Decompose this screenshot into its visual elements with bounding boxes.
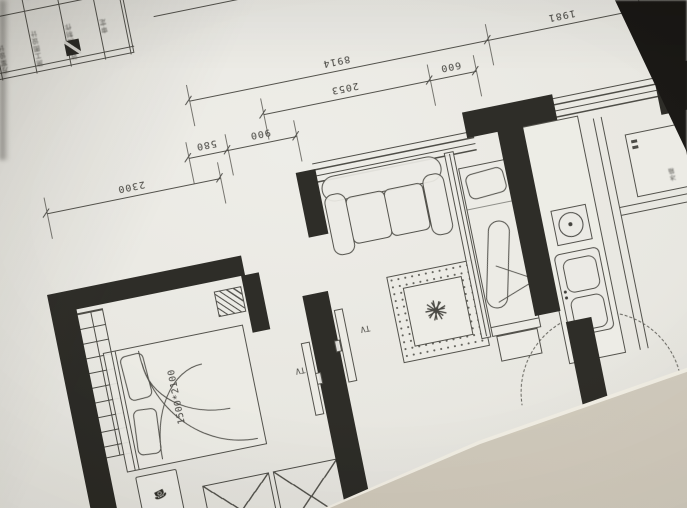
extension-line — [485, 24, 494, 65]
sheet-border-line — [154, 0, 262, 17]
bed-size-label-wrap: 1500*2100 — [136, 355, 219, 438]
extension-line — [44, 198, 53, 239]
dimension-line — [263, 71, 476, 115]
wall-entry-stub — [241, 272, 270, 332]
extension-line — [217, 162, 226, 203]
dim-2053: 2053 — [318, 77, 371, 98]
wardrobe-x-1 — [202, 472, 281, 508]
dimension-line — [189, 9, 640, 102]
sink-bowl-top — [562, 254, 602, 294]
floorplan-photo: 比例 图号 日期 方案设计 施工图设计 效果图制作 审定 8914 1981 2… — [0, 0, 687, 508]
tv-label-bedroom: TV — [285, 365, 306, 378]
left-edge-shadow — [0, 0, 9, 160]
faucet-dot — [565, 296, 569, 300]
fridge-vent — [631, 139, 637, 143]
extension-line — [473, 55, 482, 96]
bed-size-label: 1500*2100 — [166, 368, 188, 425]
entry-shoe-cabinet — [214, 286, 247, 317]
rolled-duvet — [486, 220, 510, 309]
tv-label-living: TV — [350, 323, 371, 336]
fridge: 冰箱 — [625, 123, 687, 197]
nightstand: ☎ — [135, 469, 185, 508]
plant-on-table: ✳ ✳ — [422, 294, 460, 332]
dim-2300: 2300 — [105, 176, 158, 197]
title-block-table: 比例 图号 日期 方案设计 施工图设计 效果图制作 审定 — [0, 0, 134, 108]
faucet-dot — [564, 290, 568, 294]
extension-line — [293, 120, 302, 161]
dim-1981: 1981 — [535, 5, 588, 26]
wall-bedroom-top — [47, 256, 245, 315]
extension-line — [186, 85, 195, 126]
dim-8914: 8914 — [310, 51, 363, 72]
phone-icon: ☎ — [151, 485, 168, 501]
fridge-vent — [632, 145, 638, 149]
stove — [550, 204, 592, 246]
title-block-symbol — [64, 39, 82, 57]
